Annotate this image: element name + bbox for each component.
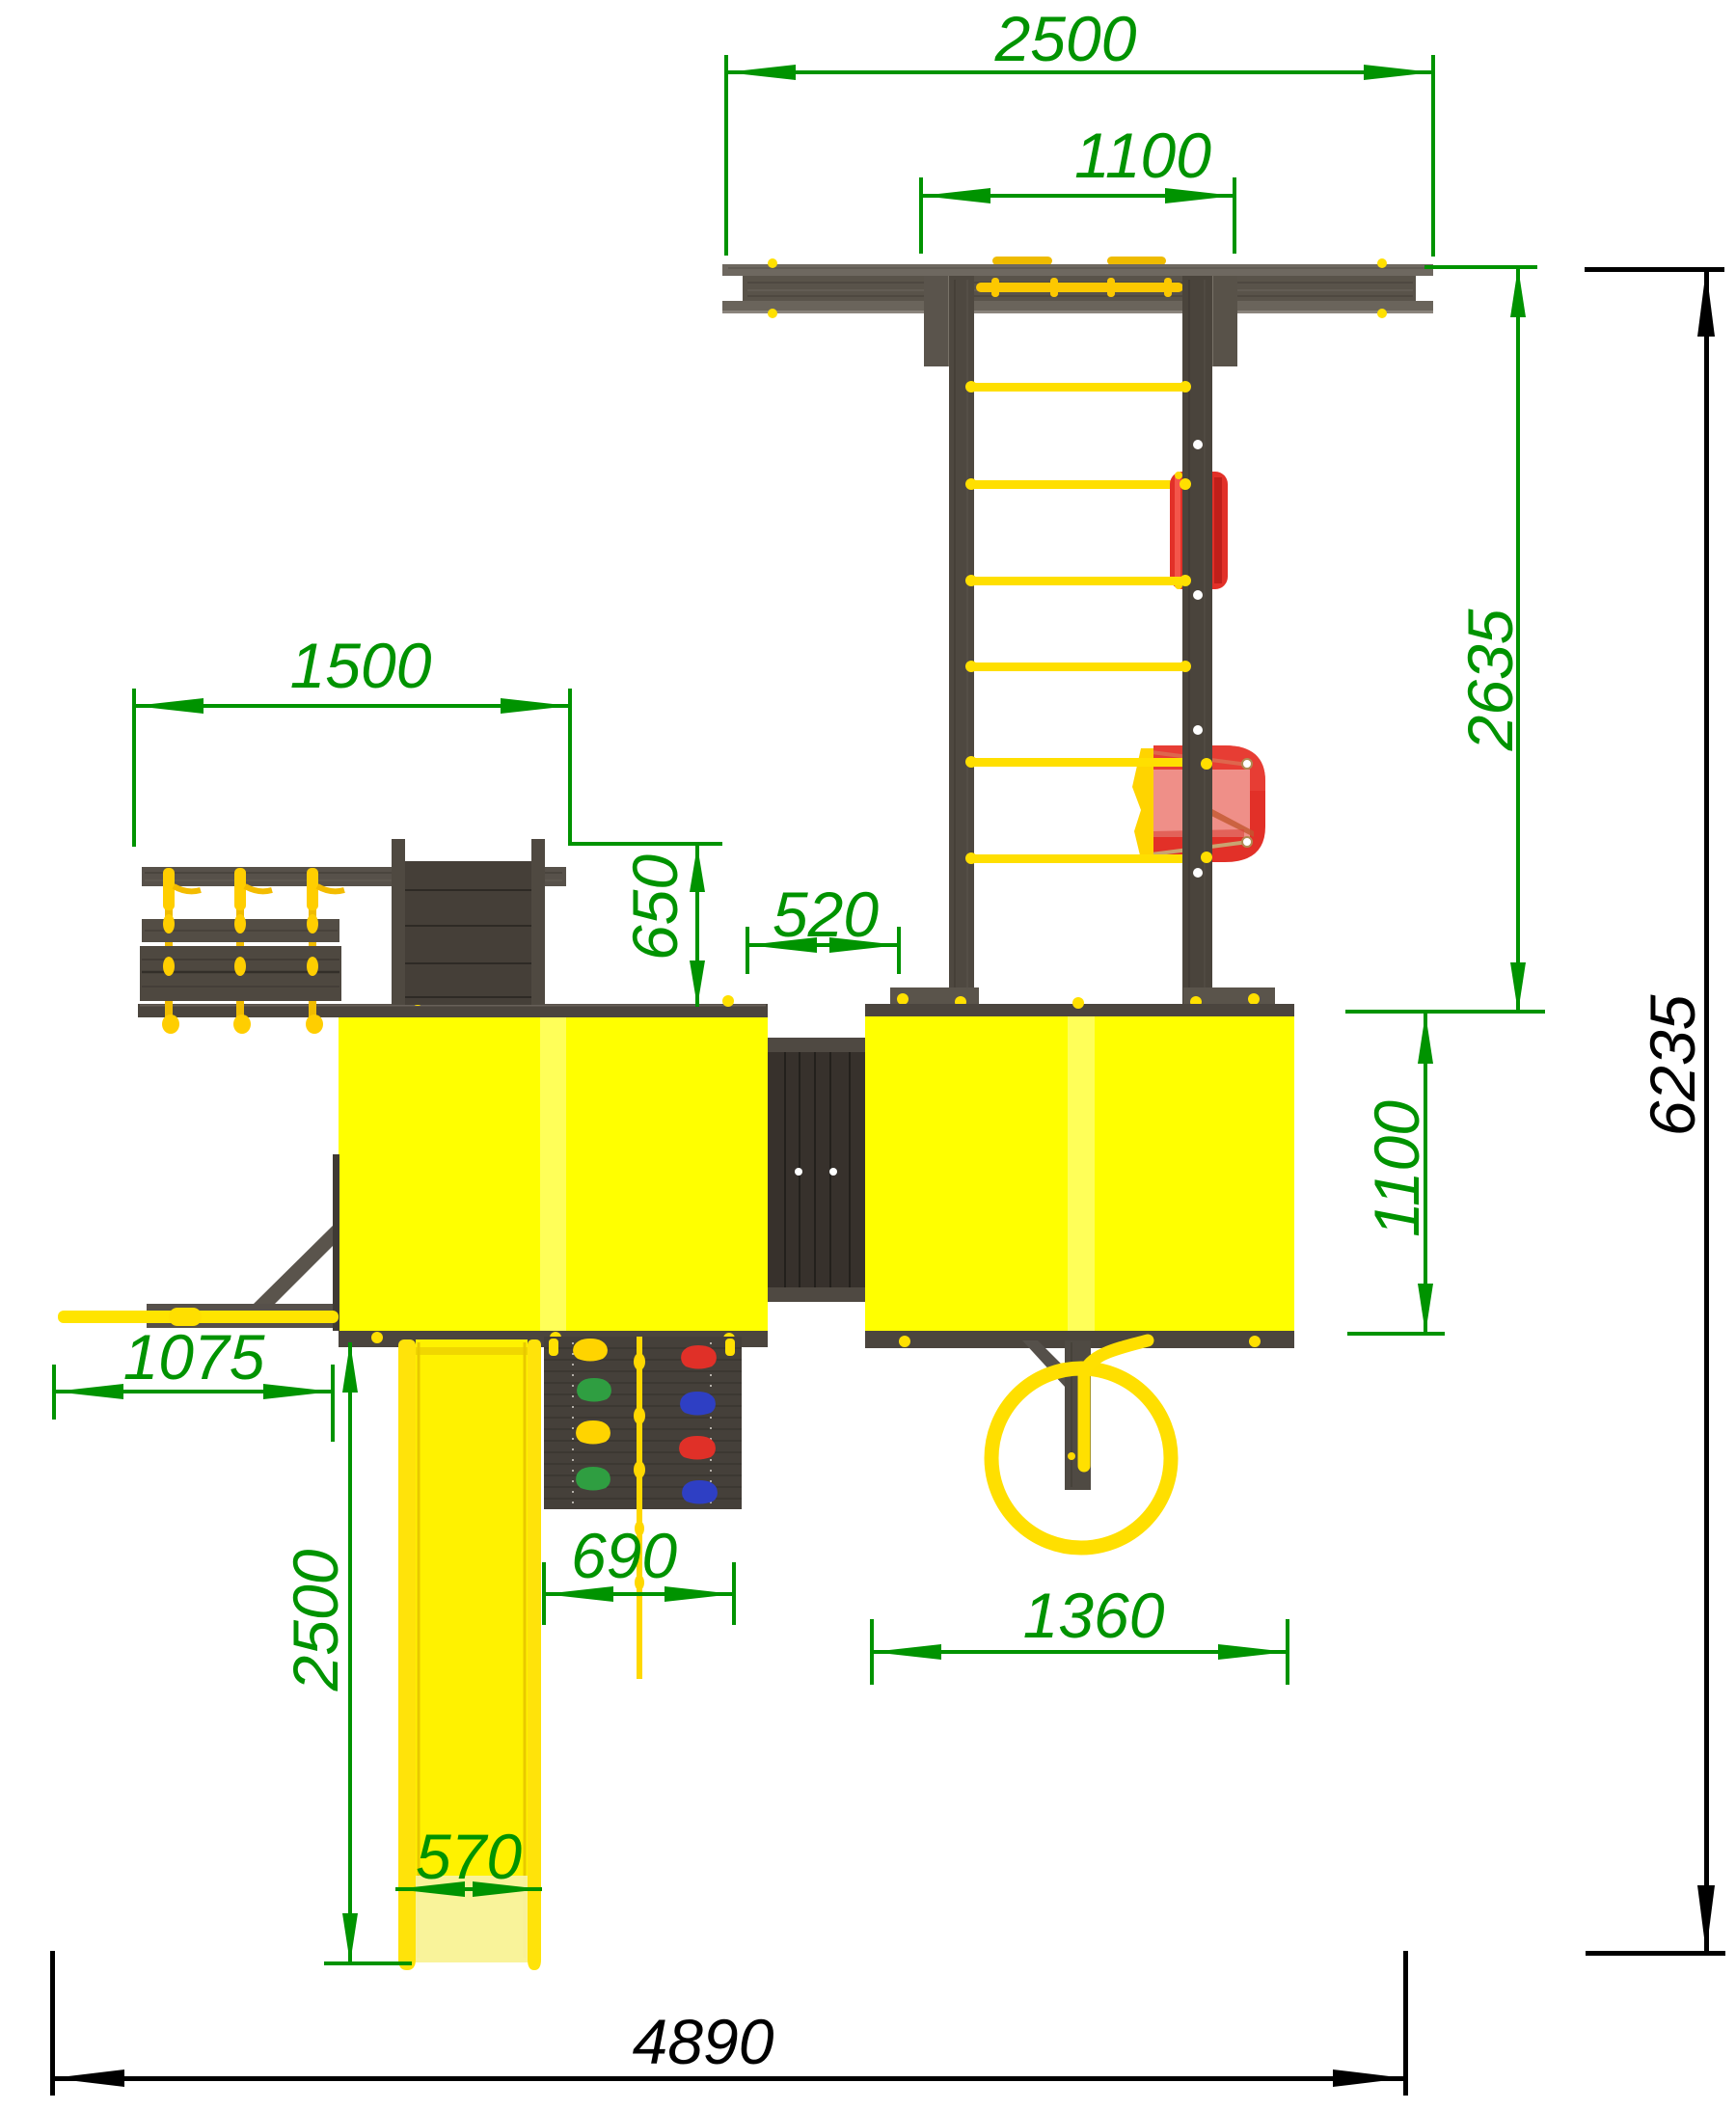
svg-text:570: 570 [416,1821,522,1892]
svg-text:1100: 1100 [1361,1100,1432,1237]
svg-text:1100: 1100 [1074,120,1211,191]
svg-text:1075: 1075 [123,1321,265,1393]
svg-text:690: 690 [571,1520,677,1591]
svg-text:1360: 1360 [1023,1580,1165,1651]
svg-text:4890: 4890 [633,2006,774,2077]
svg-text:2500: 2500 [994,3,1137,74]
svg-text:6235: 6235 [1637,994,1708,1136]
svg-text:650: 650 [619,854,691,960]
svg-text:1500: 1500 [290,630,432,701]
svg-text:2635: 2635 [1454,609,1526,751]
svg-text:520: 520 [773,879,879,950]
svg-text:2500: 2500 [280,1549,351,1691]
